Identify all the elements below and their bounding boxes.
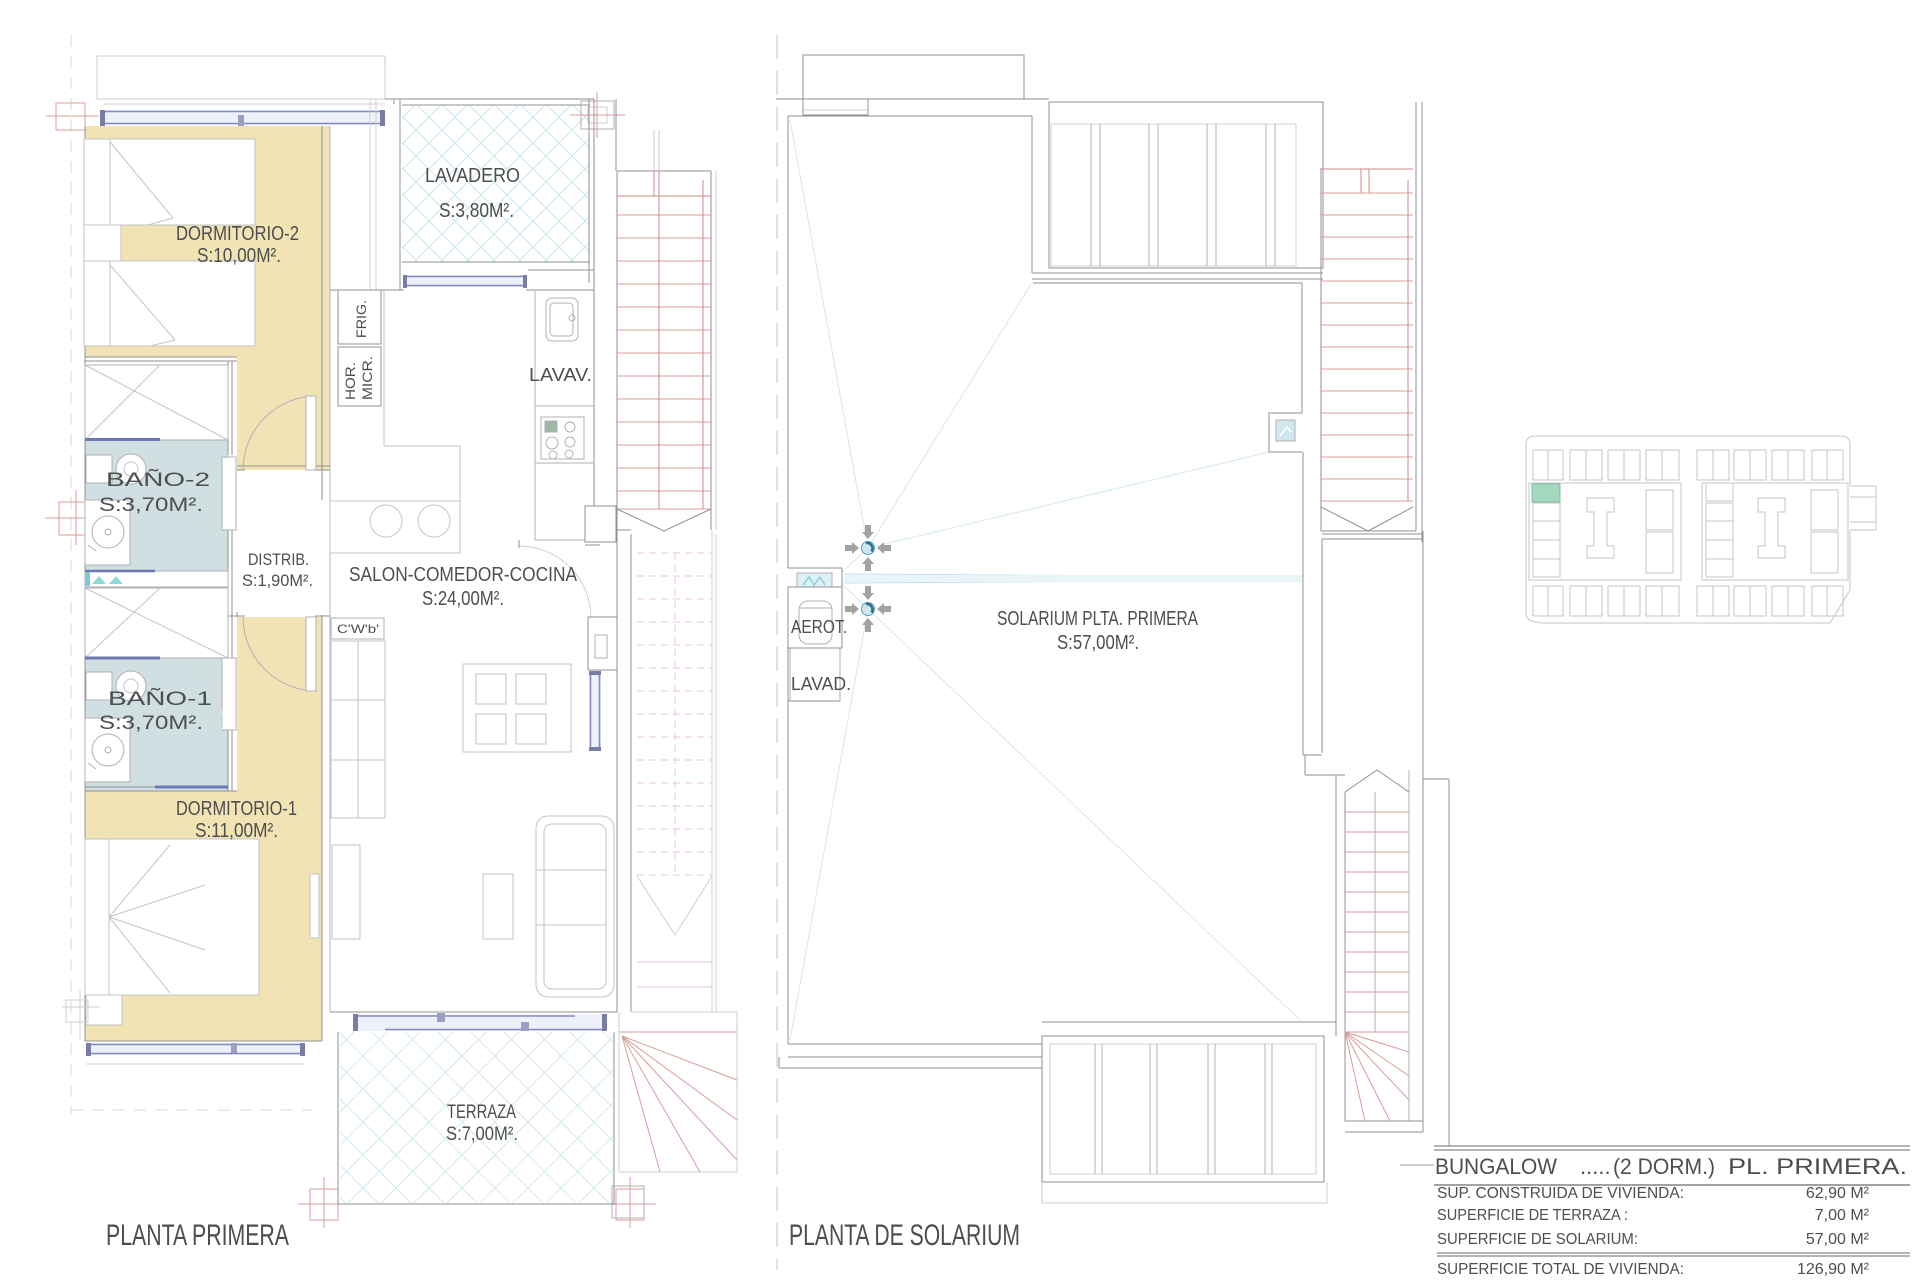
- svg-text:S:11,00M².: S:11,00M².: [195, 820, 278, 842]
- svg-text:PLANTA DE SOLARIUM: PLANTA DE SOLARIUM: [789, 1219, 1020, 1252]
- svg-text:SUP. CONSTRUIDA DE VIVIENDA:: SUP. CONSTRUIDA DE VIVIENDA:: [1437, 1185, 1684, 1202]
- svg-text:S:7,00M².: S:7,00M².: [446, 1124, 518, 1145]
- svg-text:7,00 M²: 7,00 M²: [1815, 1207, 1870, 1224]
- svg-text:LAVADERO: LAVADERO: [425, 165, 520, 187]
- svg-text:(2 DORM.): (2 DORM.): [1613, 1154, 1715, 1179]
- svg-text:AEROT.: AEROT.: [791, 617, 847, 637]
- svg-text:BAÑO-1: BAÑO-1: [108, 688, 212, 710]
- svg-text:DORMITORIO-1: DORMITORIO-1: [176, 798, 297, 820]
- svg-text:SUPERFICIE DE TERRAZA :: SUPERFICIE DE TERRAZA :: [1437, 1207, 1628, 1224]
- svg-text:BAÑO-2: BAÑO-2: [106, 469, 210, 491]
- svg-text:PL. PRIMERA.: PL. PRIMERA.: [1728, 1154, 1907, 1179]
- svg-text:DISTRIB.: DISTRIB.: [248, 550, 309, 569]
- svg-text:FRIG.: FRIG.: [353, 300, 369, 338]
- svg-text:S:57,00M².: S:57,00M².: [1057, 632, 1139, 654]
- svg-text:S:3,70M².: S:3,70M².: [99, 713, 203, 734]
- svg-text:126,90 M²: 126,90 M²: [1797, 1261, 1870, 1278]
- svg-text:PLANTA PRIMERA: PLANTA PRIMERA: [106, 1219, 289, 1252]
- svg-text:LAVAV.: LAVAV.: [529, 365, 592, 385]
- svg-text:SUPERFICIE TOTAL DE VIVIENDA:: SUPERFICIE TOTAL DE VIVIENDA:: [1437, 1261, 1684, 1278]
- svg-text:SOLARIUM PLTA. PRIMERA: SOLARIUM PLTA. PRIMERA: [997, 608, 1199, 630]
- svg-text:BUNGALOW: BUNGALOW: [1435, 1154, 1557, 1179]
- svg-text:DORMITORIO-2: DORMITORIO-2: [176, 223, 299, 245]
- svg-text:LAVAD.: LAVAD.: [791, 674, 851, 694]
- svg-text:.....: .....: [1580, 1154, 1611, 1179]
- svg-text:SALON-COMEDOR-COCINA: SALON-COMEDOR-COCINA: [349, 564, 578, 586]
- svg-text:S:3,70M².: S:3,70M².: [99, 495, 203, 516]
- svg-text:S:1,90M².: S:1,90M².: [242, 571, 313, 590]
- svg-text:S:3,80M².: S:3,80M².: [439, 200, 514, 222]
- svg-text:SUPERFICIE DE SOLARIUM:: SUPERFICIE DE SOLARIUM:: [1437, 1231, 1638, 1248]
- svg-text:57,00 M²: 57,00 M²: [1806, 1231, 1870, 1248]
- svg-text:S:10,00M².: S:10,00M².: [197, 245, 281, 267]
- svg-text:HOR.: HOR.: [342, 362, 358, 400]
- svg-text:TERRAZA: TERRAZA: [447, 1102, 516, 1123]
- svg-text:C'W'b': C'W'b': [337, 622, 379, 636]
- svg-text:MICR.: MICR.: [359, 356, 375, 400]
- svg-text:S:24,00M².: S:24,00M².: [422, 588, 504, 610]
- svg-text:62,90 M²: 62,90 M²: [1806, 1185, 1870, 1202]
